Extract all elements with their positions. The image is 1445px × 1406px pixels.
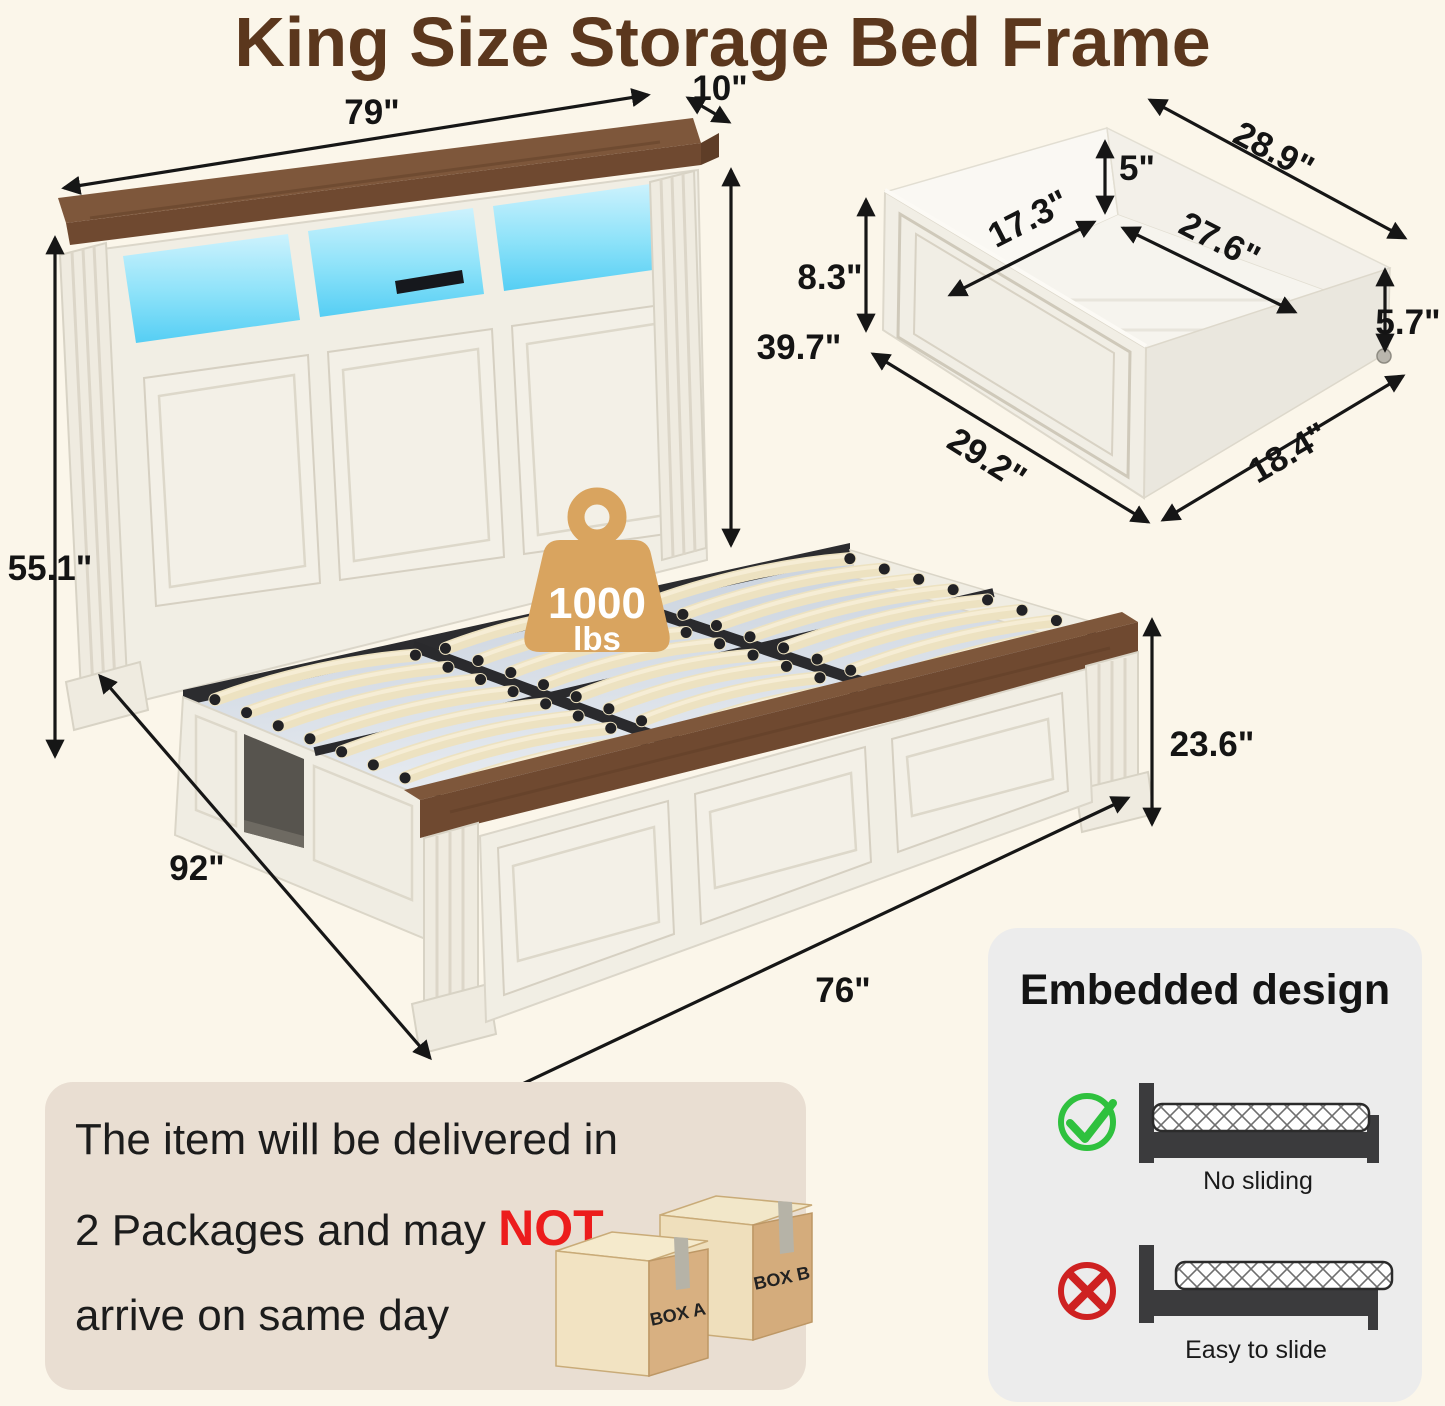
no-sliding-diagram: No sliding xyxy=(1061,1083,1379,1195)
easy-to-slide-caption: Easy to slide xyxy=(1185,1336,1327,1364)
no-sliding-caption: No sliding xyxy=(1203,1167,1313,1195)
product-infographic: King Size Storage Bed Frame xyxy=(0,0,1445,1406)
easy-to-slide-diagram: Easy to slide xyxy=(1061,1245,1392,1364)
check-icon xyxy=(1061,1096,1113,1148)
embedded-design-diagrams: No sliding Easy to slide xyxy=(0,0,1445,1406)
cross-icon xyxy=(1061,1265,1113,1317)
